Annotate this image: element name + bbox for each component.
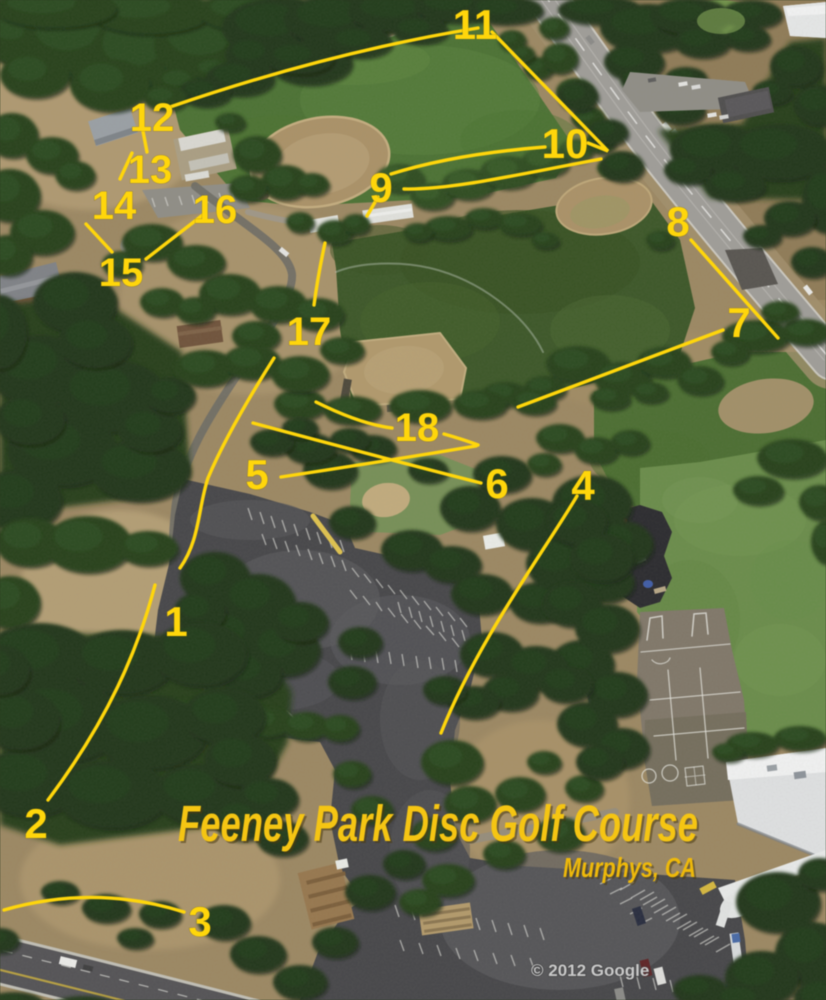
svg-text:17: 17 — [287, 310, 332, 354]
svg-text:1: 1 — [164, 598, 187, 645]
svg-text:14: 14 — [92, 184, 137, 228]
svg-text:2: 2 — [24, 800, 47, 847]
svg-text:5: 5 — [245, 451, 268, 498]
svg-text:18: 18 — [395, 406, 440, 450]
svg-text:Murphys, CA: Murphys, CA — [563, 852, 696, 883]
svg-text:4: 4 — [571, 462, 595, 509]
svg-text:10: 10 — [542, 120, 589, 167]
svg-text:16: 16 — [193, 188, 238, 232]
svg-text:Feeney Park Disc Golf Course: Feeney Park Disc Golf Course — [178, 795, 698, 852]
svg-text:7: 7 — [727, 299, 750, 346]
svg-text:11: 11 — [453, 1, 497, 48]
svg-text:15: 15 — [99, 251, 144, 295]
svg-text:8: 8 — [666, 198, 689, 245]
svg-text:6: 6 — [485, 460, 508, 507]
svg-text:3: 3 — [188, 898, 211, 945]
svg-text:9: 9 — [369, 164, 392, 211]
svg-text:© 2012 Google: © 2012 Google — [531, 961, 649, 980]
svg-text:12: 12 — [130, 96, 175, 140]
